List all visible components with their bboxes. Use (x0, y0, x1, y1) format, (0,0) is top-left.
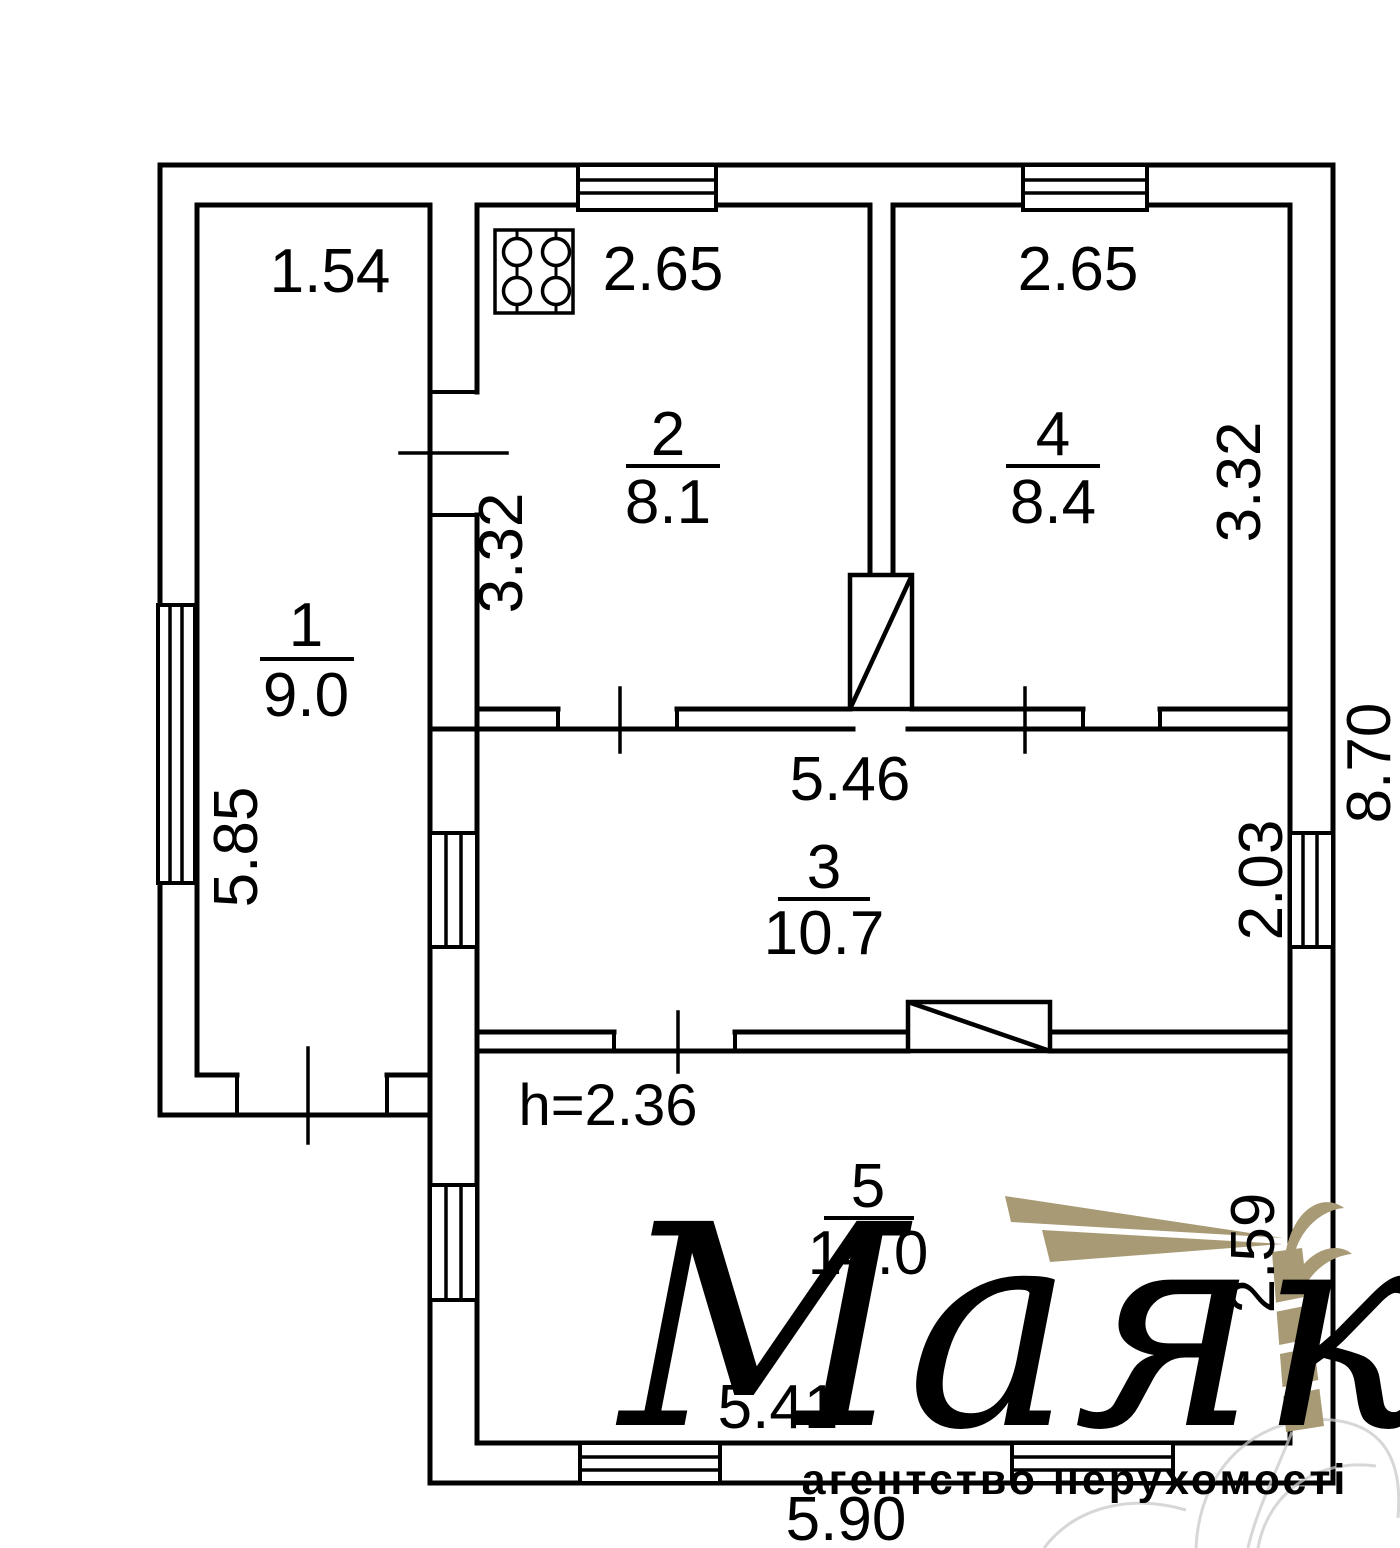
door-room3-room5-icon (908, 1002, 1050, 1051)
room2-area: 8.1 (625, 468, 711, 537)
room1-label: 1 9.0 (262, 591, 352, 730)
dim-room4-depth: 3.32 (1205, 422, 1274, 543)
dim-right-side-total: 8.70 (1335, 703, 1400, 824)
room-labels: 1 9.0 2 8.1 3 10.7 4 8.4 5 14.0 (262, 400, 1098, 1288)
room2-label: 2 8.1 (625, 400, 718, 537)
room4-number: 4 (1036, 400, 1070, 469)
room1-area: 9.0 (263, 661, 349, 730)
dim-room1-width: 1.54 (270, 237, 391, 306)
window-room3-right-icon (1290, 833, 1333, 947)
window-room5-left-icon (430, 1185, 477, 1300)
dim-room3-width: 5.46 (790, 745, 911, 814)
window-room1-room3-icon (430, 833, 477, 947)
stove-icon (495, 230, 573, 313)
dim-room1-depth: 5.85 (202, 787, 271, 908)
room3-label: 3 10.7 (764, 833, 885, 968)
room3-area: 10.7 (764, 899, 885, 968)
window-room1-left-icon (158, 605, 195, 883)
dim-bottom-total: 5.90 (786, 1485, 907, 1548)
floor-plan-page: Маяк агентство нерухомості 1.54 2.65 2.6… (0, 0, 1400, 1548)
floor-plan-canvas: Маяк агентство нерухомості 1.54 2.65 2.6… (0, 0, 1400, 1548)
dim-room5-depth: 2.59 (1219, 1193, 1288, 1314)
dim-room3-depth: 2.03 (1227, 820, 1296, 941)
room5-number: 5 (851, 1152, 885, 1221)
dim-room4-width: 2.65 (1018, 235, 1139, 304)
room3-number: 3 (807, 833, 841, 902)
window-room4-top-icon (1023, 165, 1147, 210)
dim-room2-width: 2.65 (603, 235, 724, 304)
ceiling-height-note: h=2.36 (518, 1073, 697, 1138)
room2-number: 2 (651, 400, 685, 469)
room1-number: 1 (289, 591, 323, 660)
dim-room2-depth: 3.32 (467, 493, 536, 614)
window-room2-top-icon (578, 165, 716, 210)
door-room2-room4-icon (850, 575, 912, 709)
room4-area: 8.4 (1010, 468, 1096, 537)
room4-label: 4 8.4 (1008, 400, 1098, 537)
room5-area: 14.0 (808, 1219, 929, 1288)
dim-room5-width: 5.41 (718, 1373, 839, 1442)
